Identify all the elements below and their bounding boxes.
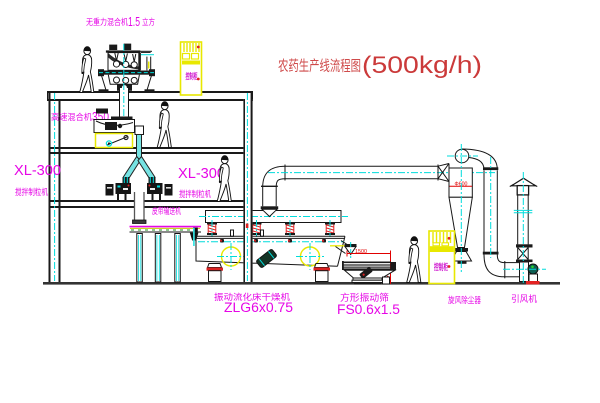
svg-text:引风机: 引风机 bbox=[511, 293, 537, 304]
svg-text:旋风除尘器: 旋风除尘器 bbox=[448, 295, 481, 305]
svg-text:XL-300: XL-300 bbox=[178, 165, 225, 182]
svg-text:立方: 立方 bbox=[142, 17, 155, 27]
svg-text:FS0.6x1.5: FS0.6x1.5 bbox=[337, 301, 400, 317]
svg-text:搅拌制粒机: 搅拌制粒机 bbox=[179, 189, 211, 199]
svg-text:搅拌制粒机: 搅拌制粒机 bbox=[15, 187, 48, 197]
svg-text:无重力混合机: 无重力混合机 bbox=[86, 17, 128, 27]
svg-text:皮带输送机: 皮带输送机 bbox=[152, 206, 181, 216]
svg-text:1500: 1500 bbox=[355, 249, 367, 255]
svg-text:控制柜: 控制柜 bbox=[186, 71, 198, 81]
svg-text:农药生产线流程图: 农药生产线流程图 bbox=[278, 58, 361, 75]
svg-text:ZLG6x0.75: ZLG6x0.75 bbox=[224, 300, 293, 315]
svg-text:1.5: 1.5 bbox=[128, 14, 140, 29]
svg-text:高速混合机: 高速混合机 bbox=[51, 112, 92, 122]
svg-text:XL-300: XL-300 bbox=[14, 162, 61, 179]
svg-text:(500kg/h): (500kg/h) bbox=[362, 52, 482, 79]
svg-text:控制柜: 控制柜 bbox=[434, 262, 448, 272]
